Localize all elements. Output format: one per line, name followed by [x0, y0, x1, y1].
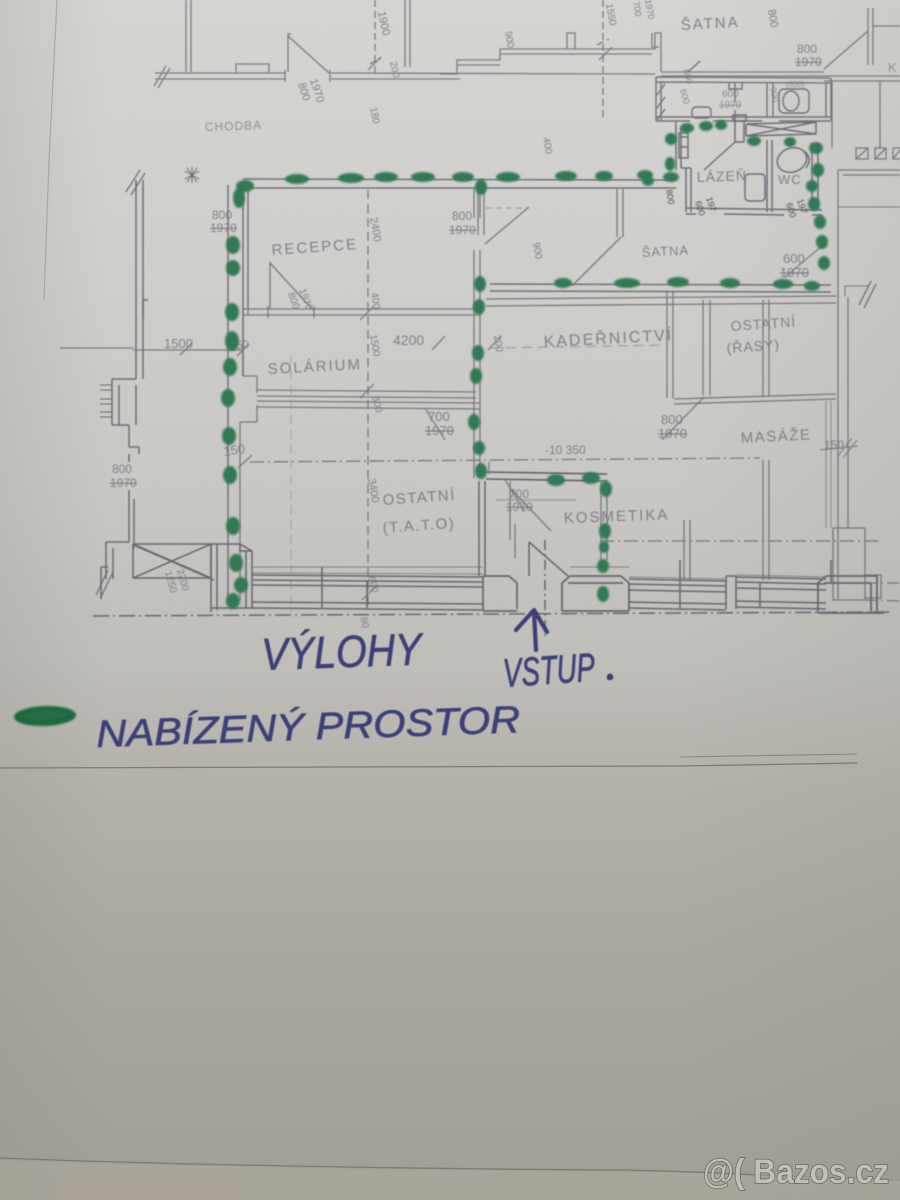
svg-text:-10 350: -10 350: [545, 443, 586, 457]
svg-text:700: 700: [428, 409, 450, 424]
svg-text:WC: WC: [778, 172, 802, 187]
svg-text:1970: 1970: [795, 55, 822, 69]
svg-text:1970: 1970: [719, 100, 742, 111]
svg-text:ŠATNA: ŠATNA: [680, 14, 740, 34]
svg-text:700: 700: [509, 487, 529, 501]
svg-text:ŠATNA: ŠATNA: [641, 243, 689, 260]
svg-text:1500: 1500: [164, 336, 193, 351]
svg-text:800: 800: [112, 462, 132, 476]
svg-text:1970: 1970: [449, 223, 476, 237]
svg-text:1970: 1970: [780, 265, 809, 280]
svg-text:800: 800: [661, 412, 683, 427]
svg-text:800: 800: [452, 209, 472, 223]
svg-text:150: 150: [824, 438, 844, 452]
svg-text:800: 800: [797, 42, 817, 56]
svg-text:1970: 1970: [210, 221, 237, 235]
svg-text:800: 800: [212, 208, 232, 222]
svg-text:(600): (600): [786, 80, 805, 89]
svg-text:1970: 1970: [110, 476, 137, 490]
svg-text:CHODBA: CHODBA: [205, 118, 263, 134]
svg-text:600: 600: [722, 89, 739, 100]
svg-text:K: K: [888, 60, 897, 75]
svg-text:@( Bazos.cz: @( Bazos.cz: [703, 1153, 889, 1191]
svg-text:LÁZEŇ: LÁZEŇ: [697, 167, 748, 185]
svg-text:VSTUP: VSTUP: [502, 646, 597, 696]
svg-text:4200: 4200: [393, 332, 424, 348]
svg-text:VÝLOHY: VÝLOHY: [261, 623, 425, 680]
